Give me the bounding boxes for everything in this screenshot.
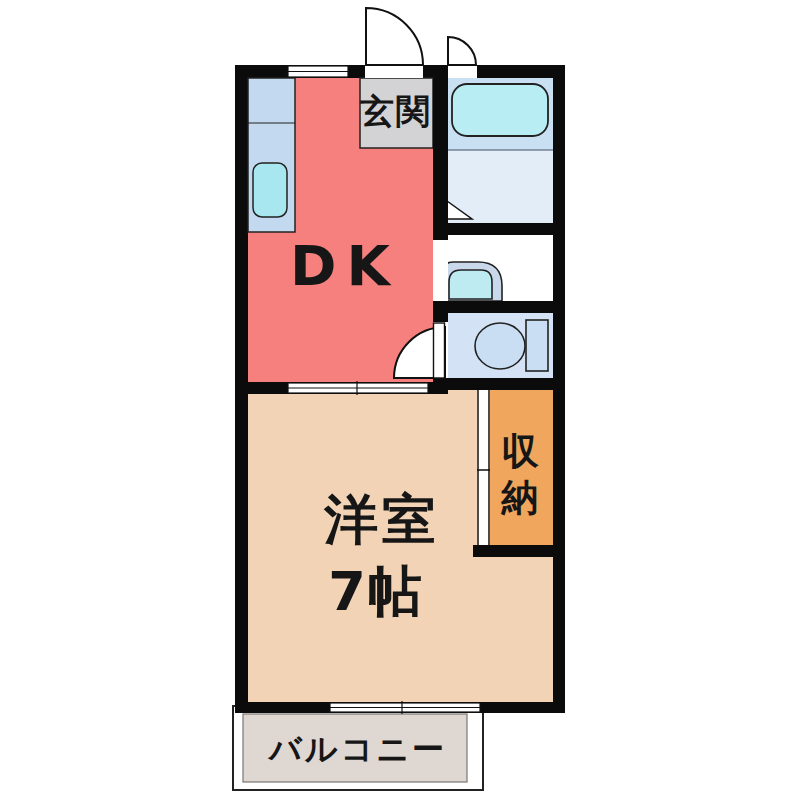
wall-washroom-bottom (433, 301, 553, 313)
storage-sliding-door-gap (477, 390, 490, 545)
top-window (288, 66, 348, 77)
bathroom (447, 78, 553, 223)
dk-door-leaf-icon (434, 323, 445, 378)
washbasin-bowl-icon (449, 270, 492, 299)
dk-room-label: DK (290, 233, 400, 298)
balcony-label: バルコニー (267, 730, 447, 768)
toilet-room (448, 313, 553, 378)
washroom-door-gap (433, 240, 448, 301)
kitchen-sink-icon (253, 163, 287, 217)
wall-toilet-bottom (433, 378, 553, 390)
western-room-label: 洋室 (323, 488, 440, 551)
balcony-window (330, 701, 480, 714)
genkan-label: 玄関 (359, 91, 432, 131)
toilet-tank-icon (526, 320, 548, 371)
wall-storage-bottom (473, 545, 553, 557)
washroom (444, 235, 553, 301)
floor-plan-drawing: DK 玄関 収 納 洋室 7帖 バルコニー (0, 0, 800, 800)
wall-bathroom-bottom (433, 223, 553, 235)
floor-plan-page: DK 玄関 収 納 洋室 7帖 バルコニー (0, 0, 800, 800)
entrance-door-gap (365, 65, 423, 78)
dk-western-window (288, 381, 428, 395)
storage-label-char-2: 納 (501, 476, 539, 519)
kitchen-counter (248, 78, 295, 232)
small-door-gap (448, 65, 477, 78)
storage-label-char-1: 収 (502, 430, 540, 473)
toilet-bowl-icon (475, 323, 525, 369)
western-room-size-label: 7帖 (328, 560, 424, 623)
bathroom-lower-floor (448, 150, 553, 223)
storage-sliding-door (477, 390, 490, 545)
bathtub-icon (452, 84, 548, 136)
